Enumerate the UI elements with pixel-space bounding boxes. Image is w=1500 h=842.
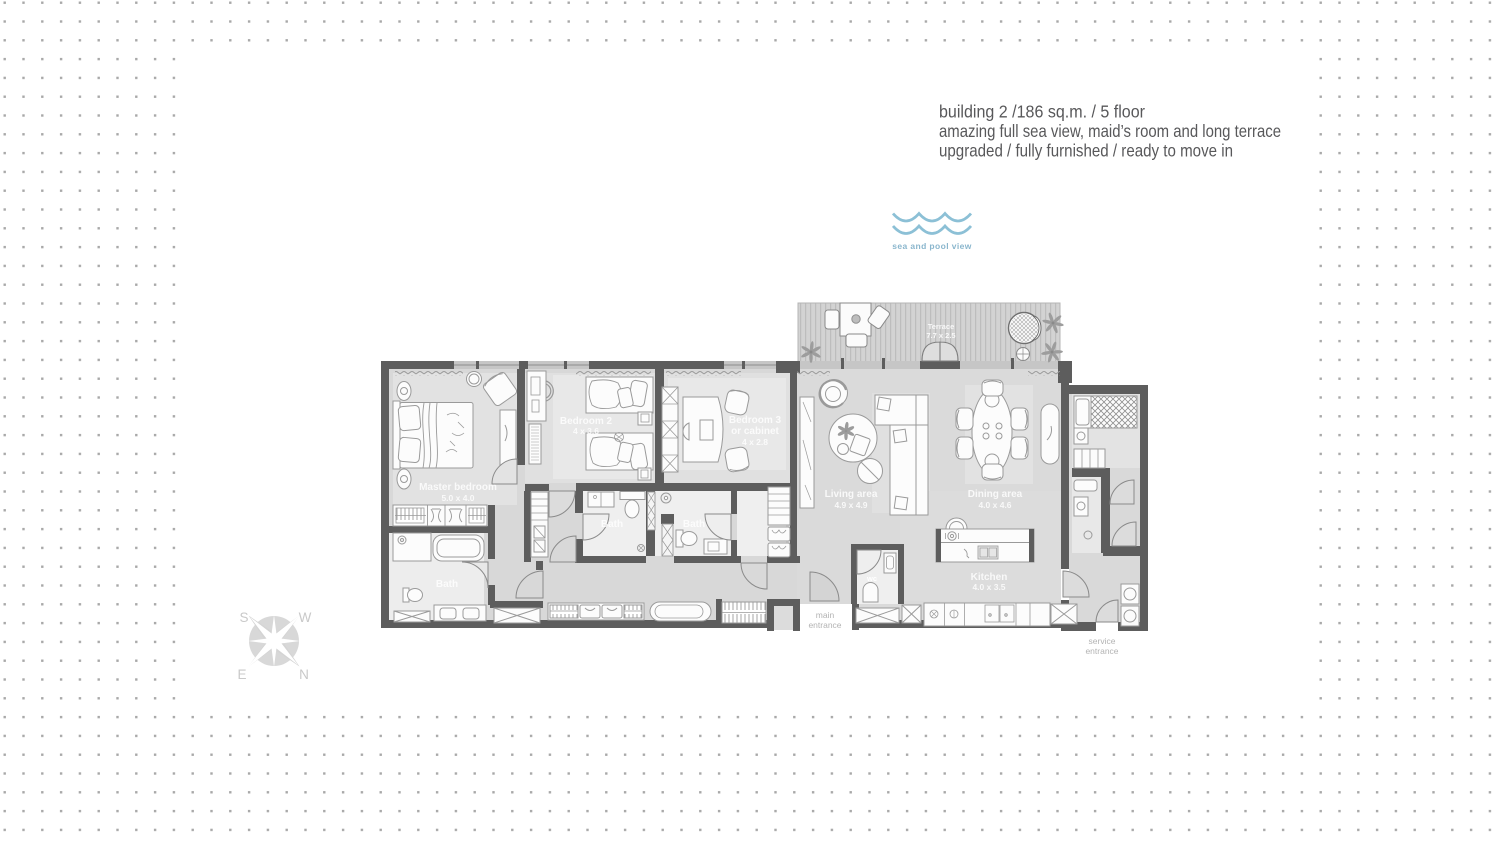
svg-text:Bath: Bath [436, 579, 458, 590]
svg-text:W: W [299, 610, 312, 625]
svg-text:or cabinet: or cabinet [731, 426, 779, 437]
svg-text:building 2 /186 sq.m. / 5 floo: building 2 /186 sq.m. / 5 floor [939, 102, 1145, 122]
svg-text:Bedroom 3: Bedroom 3 [729, 415, 782, 426]
svg-text:wc: wc [866, 574, 877, 583]
svg-text:S: S [239, 610, 248, 625]
svg-text:Bath: Bath [601, 519, 623, 530]
svg-text:amazing full sea view, maid’s: amazing full sea view, maid’s room and l… [939, 121, 1281, 141]
svg-text:7.7 x 2.5: 7.7 x 2.5 [926, 331, 955, 340]
svg-text:Bath: Bath [683, 519, 705, 530]
svg-text:4.0 x 4.6: 4.0 x 4.6 [978, 500, 1011, 510]
svg-text:Dining area: Dining area [968, 489, 1023, 500]
svg-text:5.0 x 4.0: 5.0 x 4.0 [441, 493, 474, 503]
svg-text:Terrace: Terrace [928, 322, 955, 331]
svg-text:4 x 3.6: 4 x 3.6 [573, 426, 599, 436]
svg-text:Living area: Living area [825, 489, 878, 500]
svg-text:entrance: entrance [1085, 646, 1118, 656]
svg-text:upgraded / fully furnished / r: upgraded / fully furnished / ready to mo… [939, 140, 1233, 160]
svg-text:N: N [299, 667, 309, 682]
svg-text:sea and pool view: sea and pool view [892, 241, 972, 251]
svg-text:E: E [237, 667, 246, 682]
svg-text:main: main [816, 610, 835, 620]
svg-text:4.0 x 3.5: 4.0 x 3.5 [972, 582, 1005, 592]
svg-text:Master bedroom: Master bedroom [419, 482, 497, 493]
svg-text:4 x 2.8: 4 x 2.8 [742, 437, 768, 447]
svg-text:4.9 x 4.9: 4.9 x 4.9 [834, 500, 867, 510]
svg-text:entrance: entrance [808, 620, 841, 630]
svg-text:service: service [1089, 636, 1116, 646]
